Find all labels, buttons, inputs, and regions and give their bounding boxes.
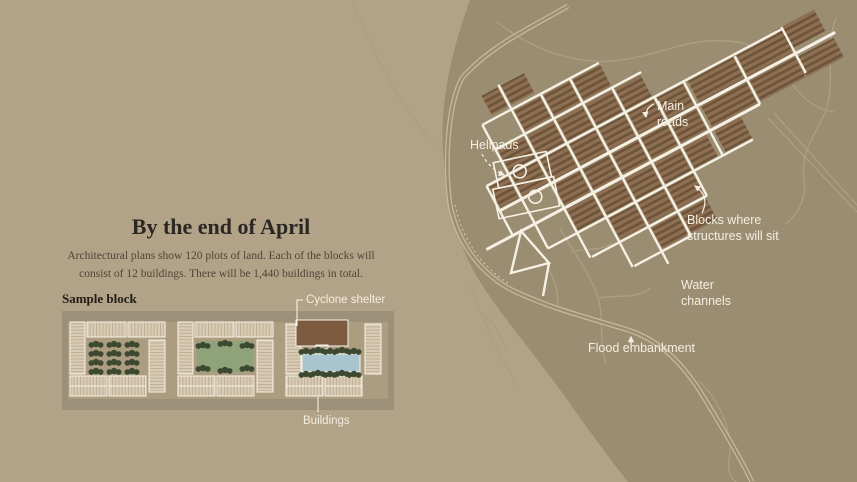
page-title: By the end of April <box>41 214 401 240</box>
buildings-label: Buildings <box>303 415 350 427</box>
infographic-canvas: Helipads Main roads Blocks where structu… <box>0 0 857 482</box>
sample-block-diagram: Cyclone shelter Buildings <box>0 0 857 482</box>
cyclone-shelter-label: Cyclone shelter <box>306 294 385 306</box>
sub-block-2 <box>178 322 273 396</box>
sample-block-heading: Sample block <box>62 291 137 307</box>
pond <box>302 354 360 372</box>
description-line-1: Architectural plans show 120 plots of la… <box>31 247 411 265</box>
description: Architectural plans show 120 plots of la… <box>31 247 411 283</box>
description-line-2: consist of 12 buildings. There will be 1… <box>31 265 411 283</box>
cyclone-shelter <box>296 320 348 346</box>
